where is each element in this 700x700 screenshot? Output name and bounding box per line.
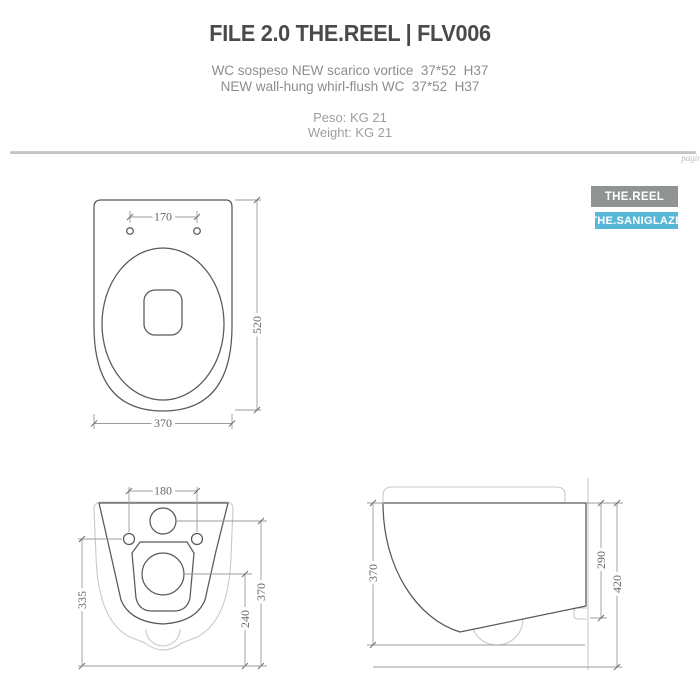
dim-label-170: 170 [154,210,172,224]
dim-label-240: 240 [238,610,252,628]
dim-label-420: 420 [610,575,624,593]
back-view-inlet-hole [150,508,176,534]
dim-label-180: 180 [154,484,172,498]
top-view-drawing: 170 520 370 [91,197,264,430]
side-view-drawing: 370 290 420 [366,478,624,670]
technical-drawing-canvas: 170 520 370 180 335 [0,0,700,700]
dim-top-depth-520: 520 [235,197,264,413]
dim-label-520: 520 [250,316,264,334]
top-view-outline [94,200,232,411]
dim-label-370-back: 370 [254,583,268,601]
back-view-drawing: 180 335 240 370 [75,484,268,670]
side-view-bowl-profile [383,503,586,632]
back-view-drain-hole [142,553,184,595]
side-view-seat-lid [383,487,565,503]
back-view-drain-bump [146,629,180,646]
dim-top-width-370: 370 [91,414,235,430]
back-view-bolt-hole-left [124,534,135,545]
back-view-bolt-hole-right [192,534,203,545]
dim-label-370-side: 370 [366,564,380,582]
dim-label-370-top: 370 [154,416,172,430]
side-view-bracket [574,608,587,619]
dim-label-290: 290 [594,551,608,569]
dim-label-335: 335 [75,591,89,609]
